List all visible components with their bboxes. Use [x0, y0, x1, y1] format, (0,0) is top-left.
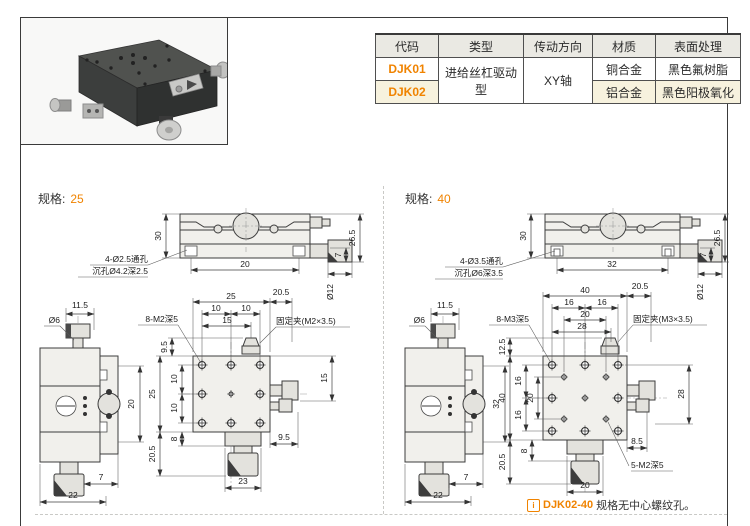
dim-label: 26.5 [347, 229, 357, 246]
col-header-direction: 传动方向 [524, 34, 593, 58]
dim-label: 20 [580, 309, 590, 319]
material-cell: 铝合金 [593, 81, 656, 104]
page-border-top [227, 17, 728, 18]
dim-label: 30 [518, 231, 528, 241]
finish-cell: 黑色阳极氧化 [656, 81, 741, 104]
type-cell: 进给丝杠驱动型 [439, 58, 524, 104]
finish-cell: 黑色氟树脂 [656, 58, 741, 81]
spec25-drawings: 30 20 26.5 7 Ø12 4-Ø2.5通孔 沉孔Ø4.2深2.5 [20, 196, 365, 526]
side-lock [83, 104, 103, 118]
dim-label: 7 [333, 252, 343, 257]
dim-label: 10 [169, 374, 179, 384]
catalog-page: 代码 类型 传动方向 材质 表面处理 DJK01 进给丝杠驱动型 XY轴 铜合金… [0, 0, 750, 526]
dim-label: 11.5 [437, 300, 453, 310]
clamp-label: 固定夹(M2×3.5) [276, 316, 336, 326]
col-header-finish: 表面处理 [656, 34, 741, 58]
table-header-row: 代码 类型 传动方向 材质 表面处理 [376, 34, 741, 58]
material-cell: 铜合金 [593, 58, 656, 81]
dim-label: 15 [319, 373, 329, 383]
dim-label: 11.5 [72, 300, 88, 310]
dim-label: 40 [580, 285, 590, 295]
dim-label: 23 [238, 476, 248, 486]
spec40-drawings: 30 32 26.5 7 Ø12 4-Ø3.5通孔 沉孔Ø6深3.5 [385, 196, 730, 526]
dim-label: 7 [99, 472, 104, 482]
center-holes-label: 5-M2深5 [631, 460, 664, 470]
dim-label: 16 [597, 297, 607, 307]
dim-label: 40 [497, 393, 507, 403]
hole-note: 沉孔Ø6深3.5 [454, 268, 503, 278]
dim-label: 28 [577, 321, 587, 331]
dim-label: Ø12 [325, 284, 335, 300]
dim-label: 25 [147, 389, 157, 399]
dim-label: 15 [222, 315, 232, 325]
col-header-material: 材质 [593, 34, 656, 58]
dim-label: 8 [169, 436, 179, 441]
product-photo [21, 18, 227, 144]
spec-table: 代码 类型 传动方向 材质 表面处理 DJK01 进给丝杠驱动型 XY轴 铜合金… [375, 33, 741, 104]
dim-label: 8.5 [631, 436, 643, 446]
dim-label: 30 [153, 231, 163, 241]
dim-label: 20.5 [497, 453, 507, 470]
hole-note: 4-Ø3.5通孔 [460, 256, 503, 266]
hole-note: 沉孔Ø4.2深2.5 [92, 266, 148, 276]
code-cell: DJK02 [376, 81, 439, 104]
dim-label: 25 [226, 291, 236, 301]
code-cell: DJK01 [376, 58, 439, 81]
dim-label: 26.5 [712, 229, 722, 246]
dim-label: 20.5 [147, 445, 157, 462]
dim-label: 9.5 [278, 432, 290, 442]
dim-label: 32 [607, 259, 617, 269]
spec25-front-view: 30 20 26.5 7 Ø12 4-Ø2.5通孔 沉孔Ø4.2深2.5 [78, 208, 364, 300]
dim-label: 7 [698, 252, 708, 257]
dim-label: 20 [240, 259, 250, 269]
dim-label: 10 [211, 303, 221, 313]
dim-label: 10 [169, 403, 179, 413]
spec40-plan-view: 40 20.5 16 16 20 28 12.5 40 [489, 281, 707, 496]
footnote: i DJK02-40 规格无中心螺纹孔。 [527, 497, 695, 513]
dim-label: 16 [564, 297, 574, 307]
dim-label: 22 [433, 490, 443, 500]
col-header-code: 代码 [376, 34, 439, 58]
dim-label: 16 [513, 376, 523, 386]
holes-label: 8-M3深5 [496, 314, 529, 324]
dim-label: Ø6 [49, 315, 61, 325]
dim-label: Ø12 [695, 284, 705, 300]
dim-label: 20 [126, 399, 136, 409]
dim-label: 20.5 [273, 287, 290, 297]
dim-label: 20.5 [632, 281, 649, 291]
dim-label: 16 [513, 410, 523, 420]
hole-note: 4-Ø2.5通孔 [105, 254, 148, 264]
dim-label: 10 [241, 303, 251, 313]
spec25-plan-view: 25 20.5 10 10 15 9.5 25 1 [138, 287, 350, 492]
footnote-text: 规格无中心螺纹孔。 [596, 497, 695, 513]
dim-label: 12.5 [497, 338, 507, 355]
clamp-label: 固定夹(M3×3.5) [633, 314, 693, 324]
section-divider [383, 186, 384, 514]
col-header-type: 类型 [439, 34, 524, 58]
spec40-side-view: 11.5 Ø6 32 7 22 [405, 300, 509, 506]
direction-cell: XY轴 [524, 58, 593, 104]
dim-label: 28 [676, 389, 686, 399]
dim-label: 20 [580, 480, 590, 490]
holes-label: 8-M2深5 [145, 314, 178, 324]
dim-label: 22 [68, 490, 78, 500]
dim-label: Ø6 [414, 315, 426, 325]
dim-label: 7 [464, 472, 469, 482]
footnote-code: DJK02-40 [543, 499, 593, 511]
spec25-side-view: 11.5 Ø6 20 7 22 [40, 300, 144, 506]
dim-label: 9.5 [159, 341, 169, 353]
dim-label: 20 [525, 393, 535, 403]
dim-label: 8 [519, 448, 529, 453]
table-row: DJK01 进给丝杠驱动型 XY轴 铜合金 黑色氟树脂 [376, 58, 741, 81]
product-photo-frame [20, 17, 228, 145]
info-icon: i [527, 499, 540, 512]
